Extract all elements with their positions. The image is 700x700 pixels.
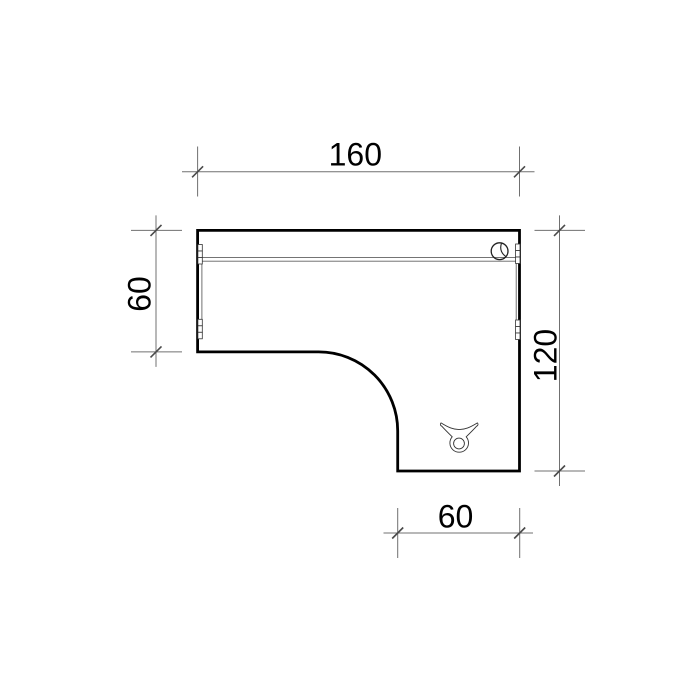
svg-text:160: 160: [329, 137, 382, 173]
svg-text:60: 60: [438, 499, 474, 535]
svg-text:120: 120: [528, 329, 564, 382]
svg-text:60: 60: [122, 276, 158, 312]
